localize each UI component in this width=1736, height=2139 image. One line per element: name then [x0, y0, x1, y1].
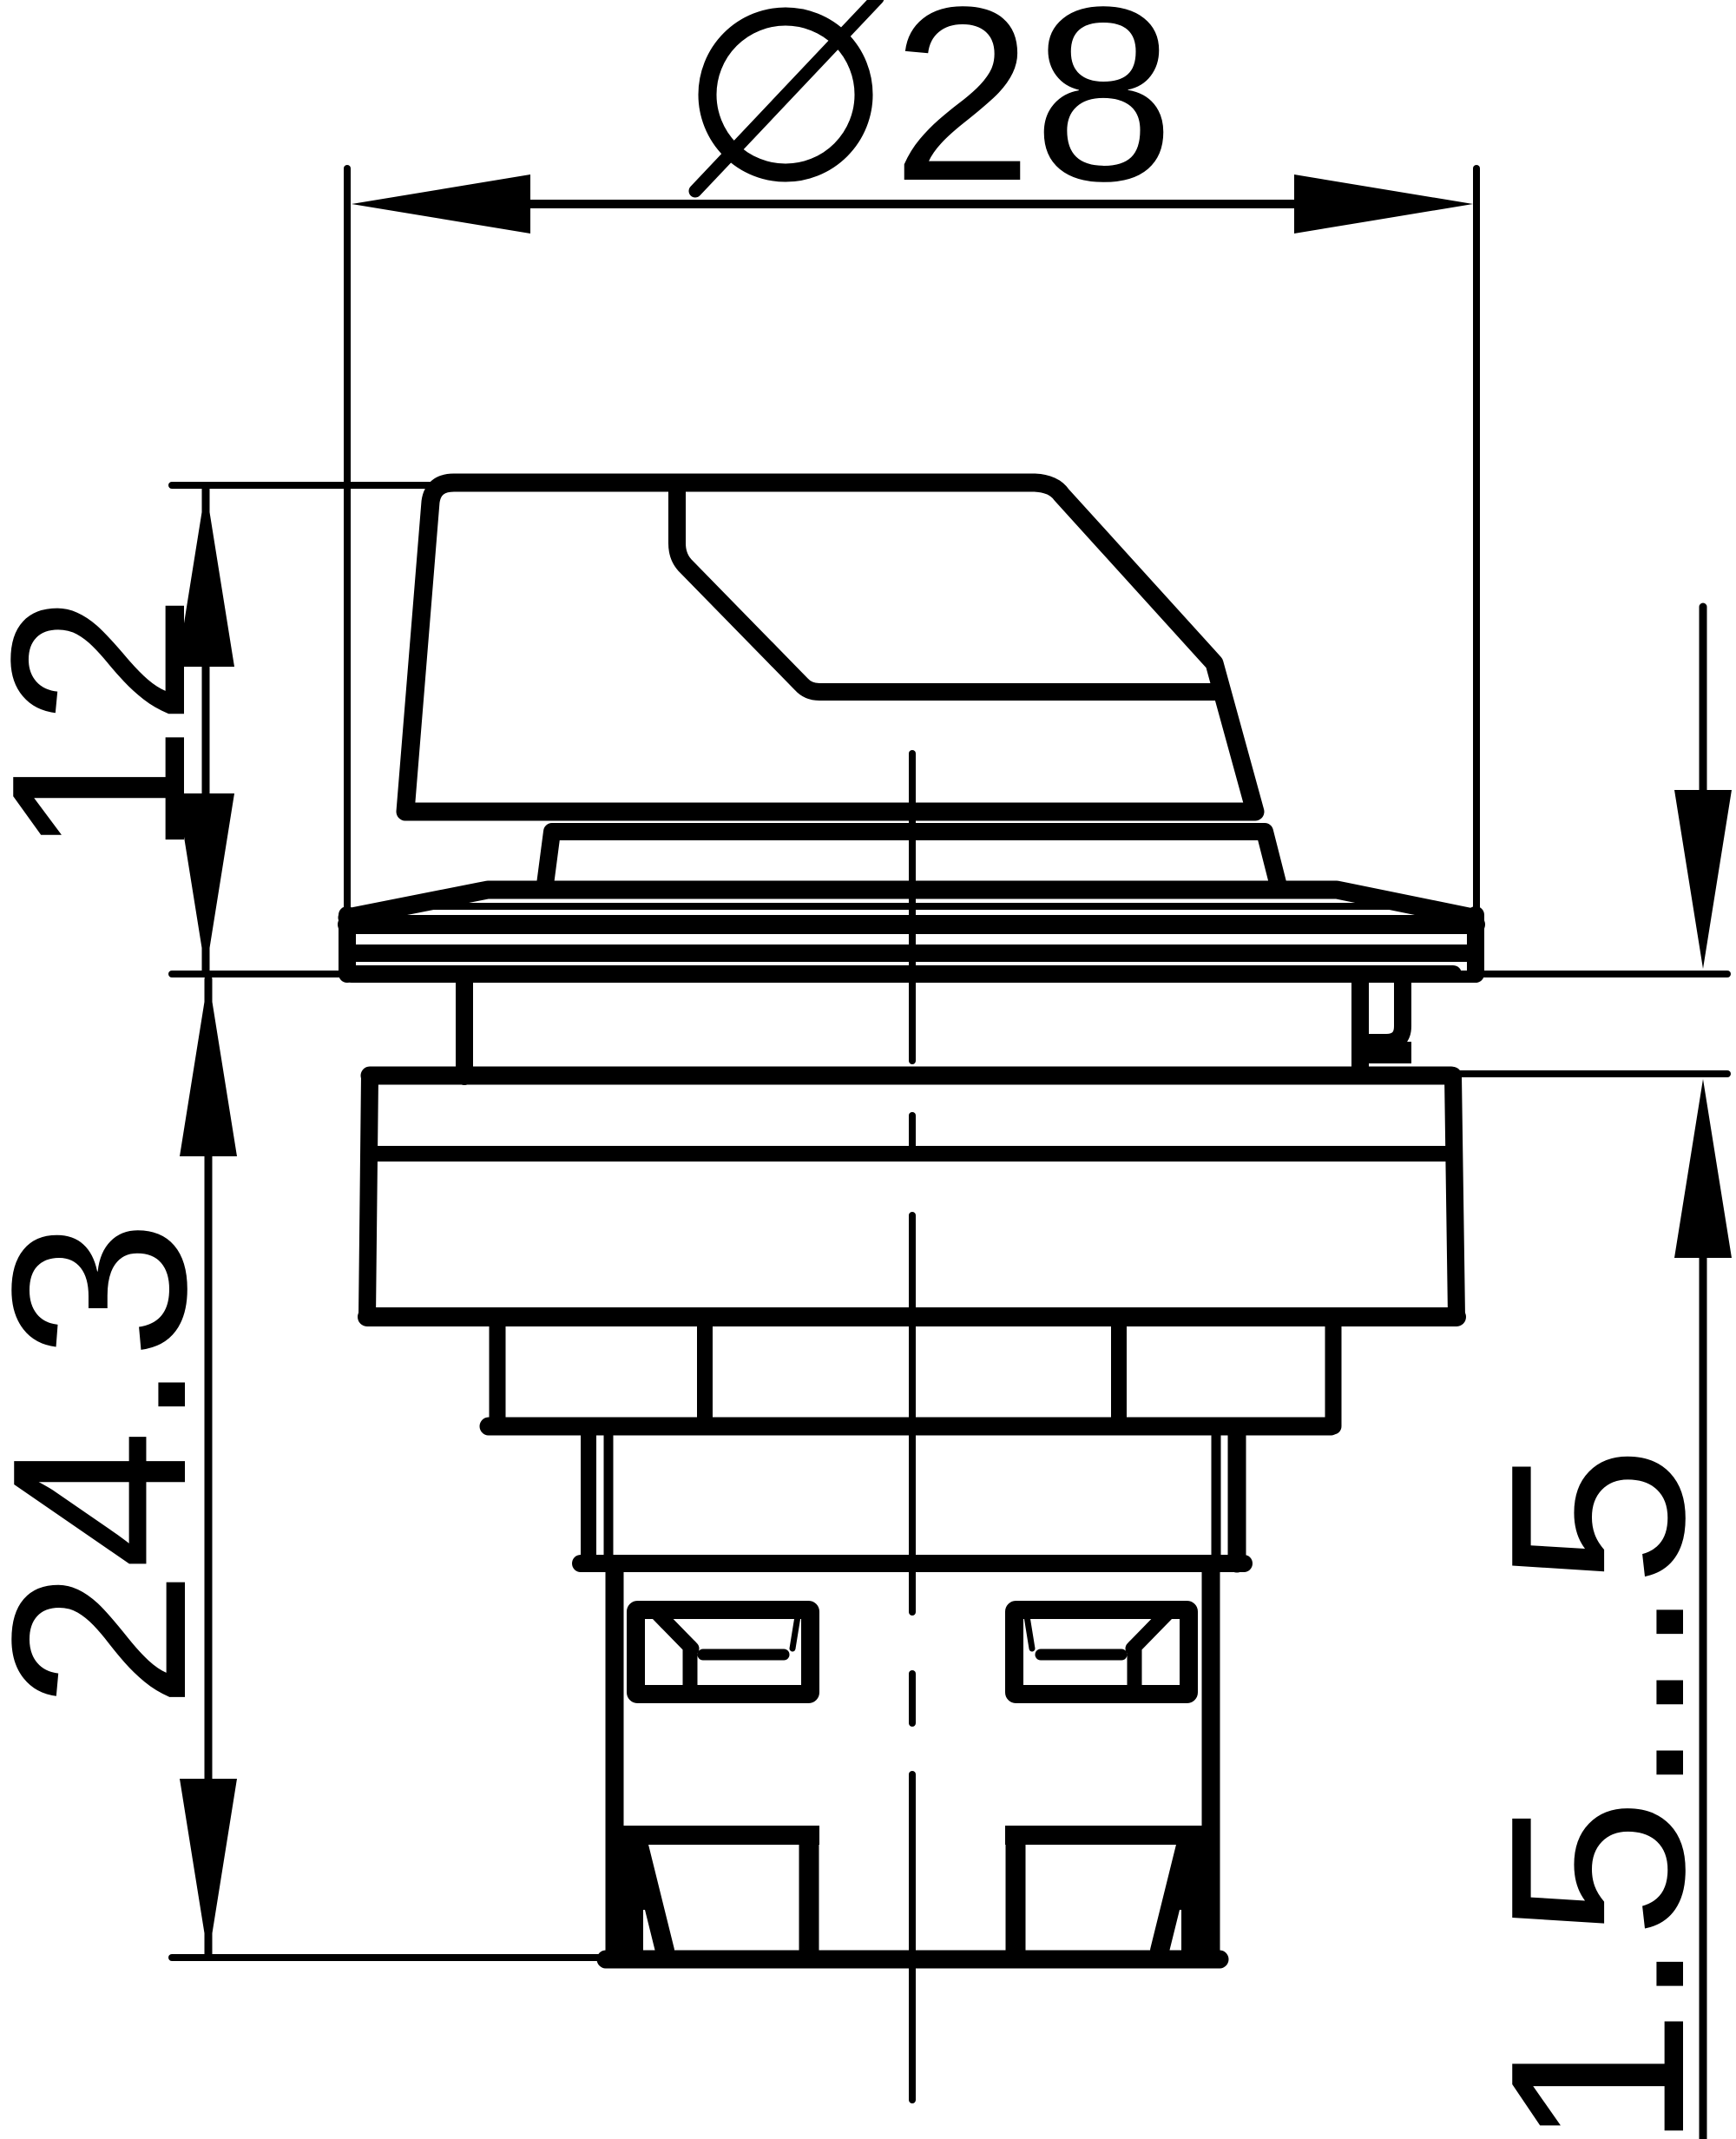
svg-text:1.5...5: 1.5...5 — [1458, 1446, 1736, 2139]
svg-text:28: 28 — [891, 0, 1174, 233]
svg-text:24.3: 24.3 — [0, 1220, 238, 1710]
